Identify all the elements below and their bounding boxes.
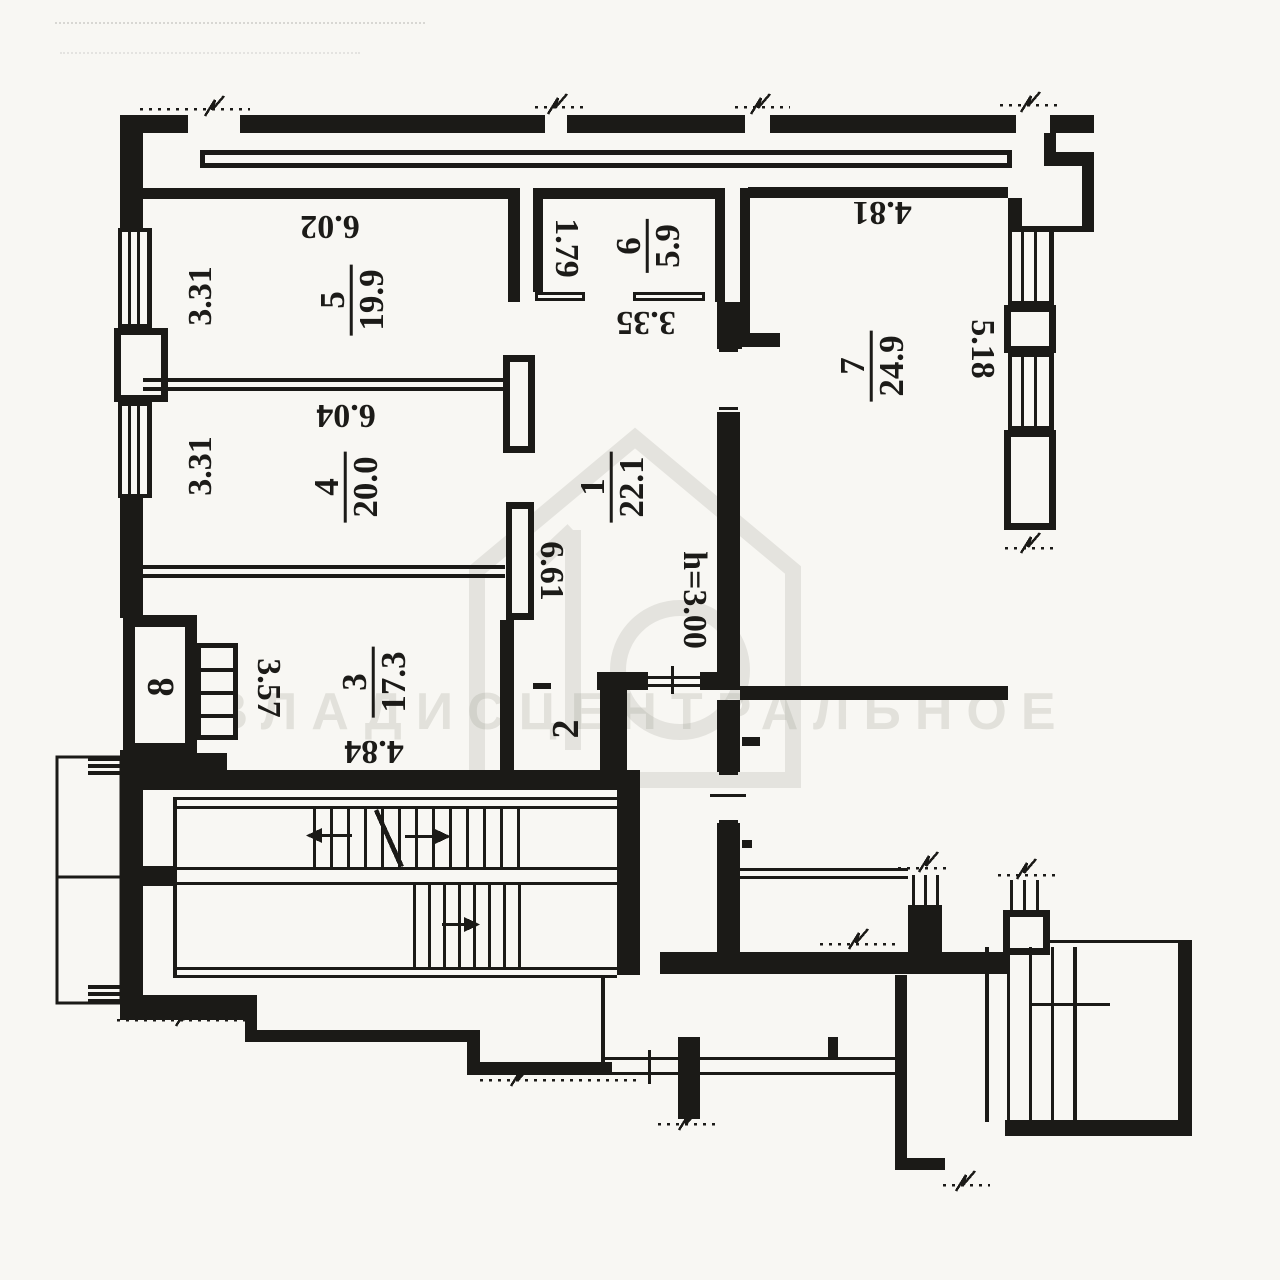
floor-plan-scan: ВЛАДИСЦЕНТРАЛЬНОЕ: [0, 0, 1280, 1280]
room4-number: 4: [310, 470, 344, 504]
dim-3-57: 3.57: [252, 658, 284, 718]
room7-number: 7: [836, 349, 870, 383]
balcony: [57, 757, 121, 1003]
room1-area: 22.1: [610, 451, 648, 522]
room7-walls: [740, 187, 1008, 700]
room4-label: 420.0: [310, 451, 383, 522]
break-marks: [117, 92, 1063, 1191]
dim-3-31-upper: 3.31: [185, 266, 217, 326]
corridor-duct: [200, 150, 1012, 168]
plan-linework: [0, 0, 1280, 1280]
room7-label: 724.9: [836, 330, 909, 401]
room7-area: 24.9: [870, 330, 908, 401]
room6-area: 5.9: [646, 219, 684, 273]
room2-number: 2: [548, 720, 584, 739]
south-ground-lines: [601, 975, 895, 1119]
room3-area: 17.3: [372, 646, 410, 717]
stairwell: [173, 790, 640, 978]
dim-3-35: 3.35: [616, 306, 676, 338]
dim-6-02: 6.02: [300, 210, 360, 242]
east-wall-windows: [1004, 198, 1094, 530]
room4-area: 20.0: [344, 451, 382, 522]
dim-3-31-lower: 3.31: [185, 436, 217, 496]
room8-number: 8: [143, 678, 179, 697]
room6-label: 65.9: [612, 219, 685, 273]
room6-number: 6: [612, 229, 646, 263]
dim-6-61: 6.61: [535, 541, 567, 601]
dim-5-18: 5.18: [966, 319, 998, 379]
entrance-stair: [985, 880, 1192, 1136]
room3-number: 3: [338, 665, 372, 699]
dim-6-04: 6.04: [316, 399, 376, 431]
window-left-lower: [118, 402, 152, 498]
window-left-upper: [118, 228, 152, 328]
dim-4-81: 4.81: [852, 196, 912, 228]
room1-number: 1: [576, 470, 610, 504]
room1-label: 122.1: [576, 451, 649, 522]
north-wall: [120, 115, 1094, 230]
hall-east-wall: [710, 349, 760, 955]
room5-number: 5: [316, 283, 350, 317]
room5-area: 19.9: [350, 264, 388, 335]
ceiling-height-note: h=3.00: [678, 551, 710, 649]
room3-label: 317.3: [338, 646, 411, 717]
room5-label: 519.9: [316, 264, 389, 335]
dim-1-79: 1.79: [550, 218, 582, 278]
dim-4-84: 4.84: [344, 735, 404, 767]
